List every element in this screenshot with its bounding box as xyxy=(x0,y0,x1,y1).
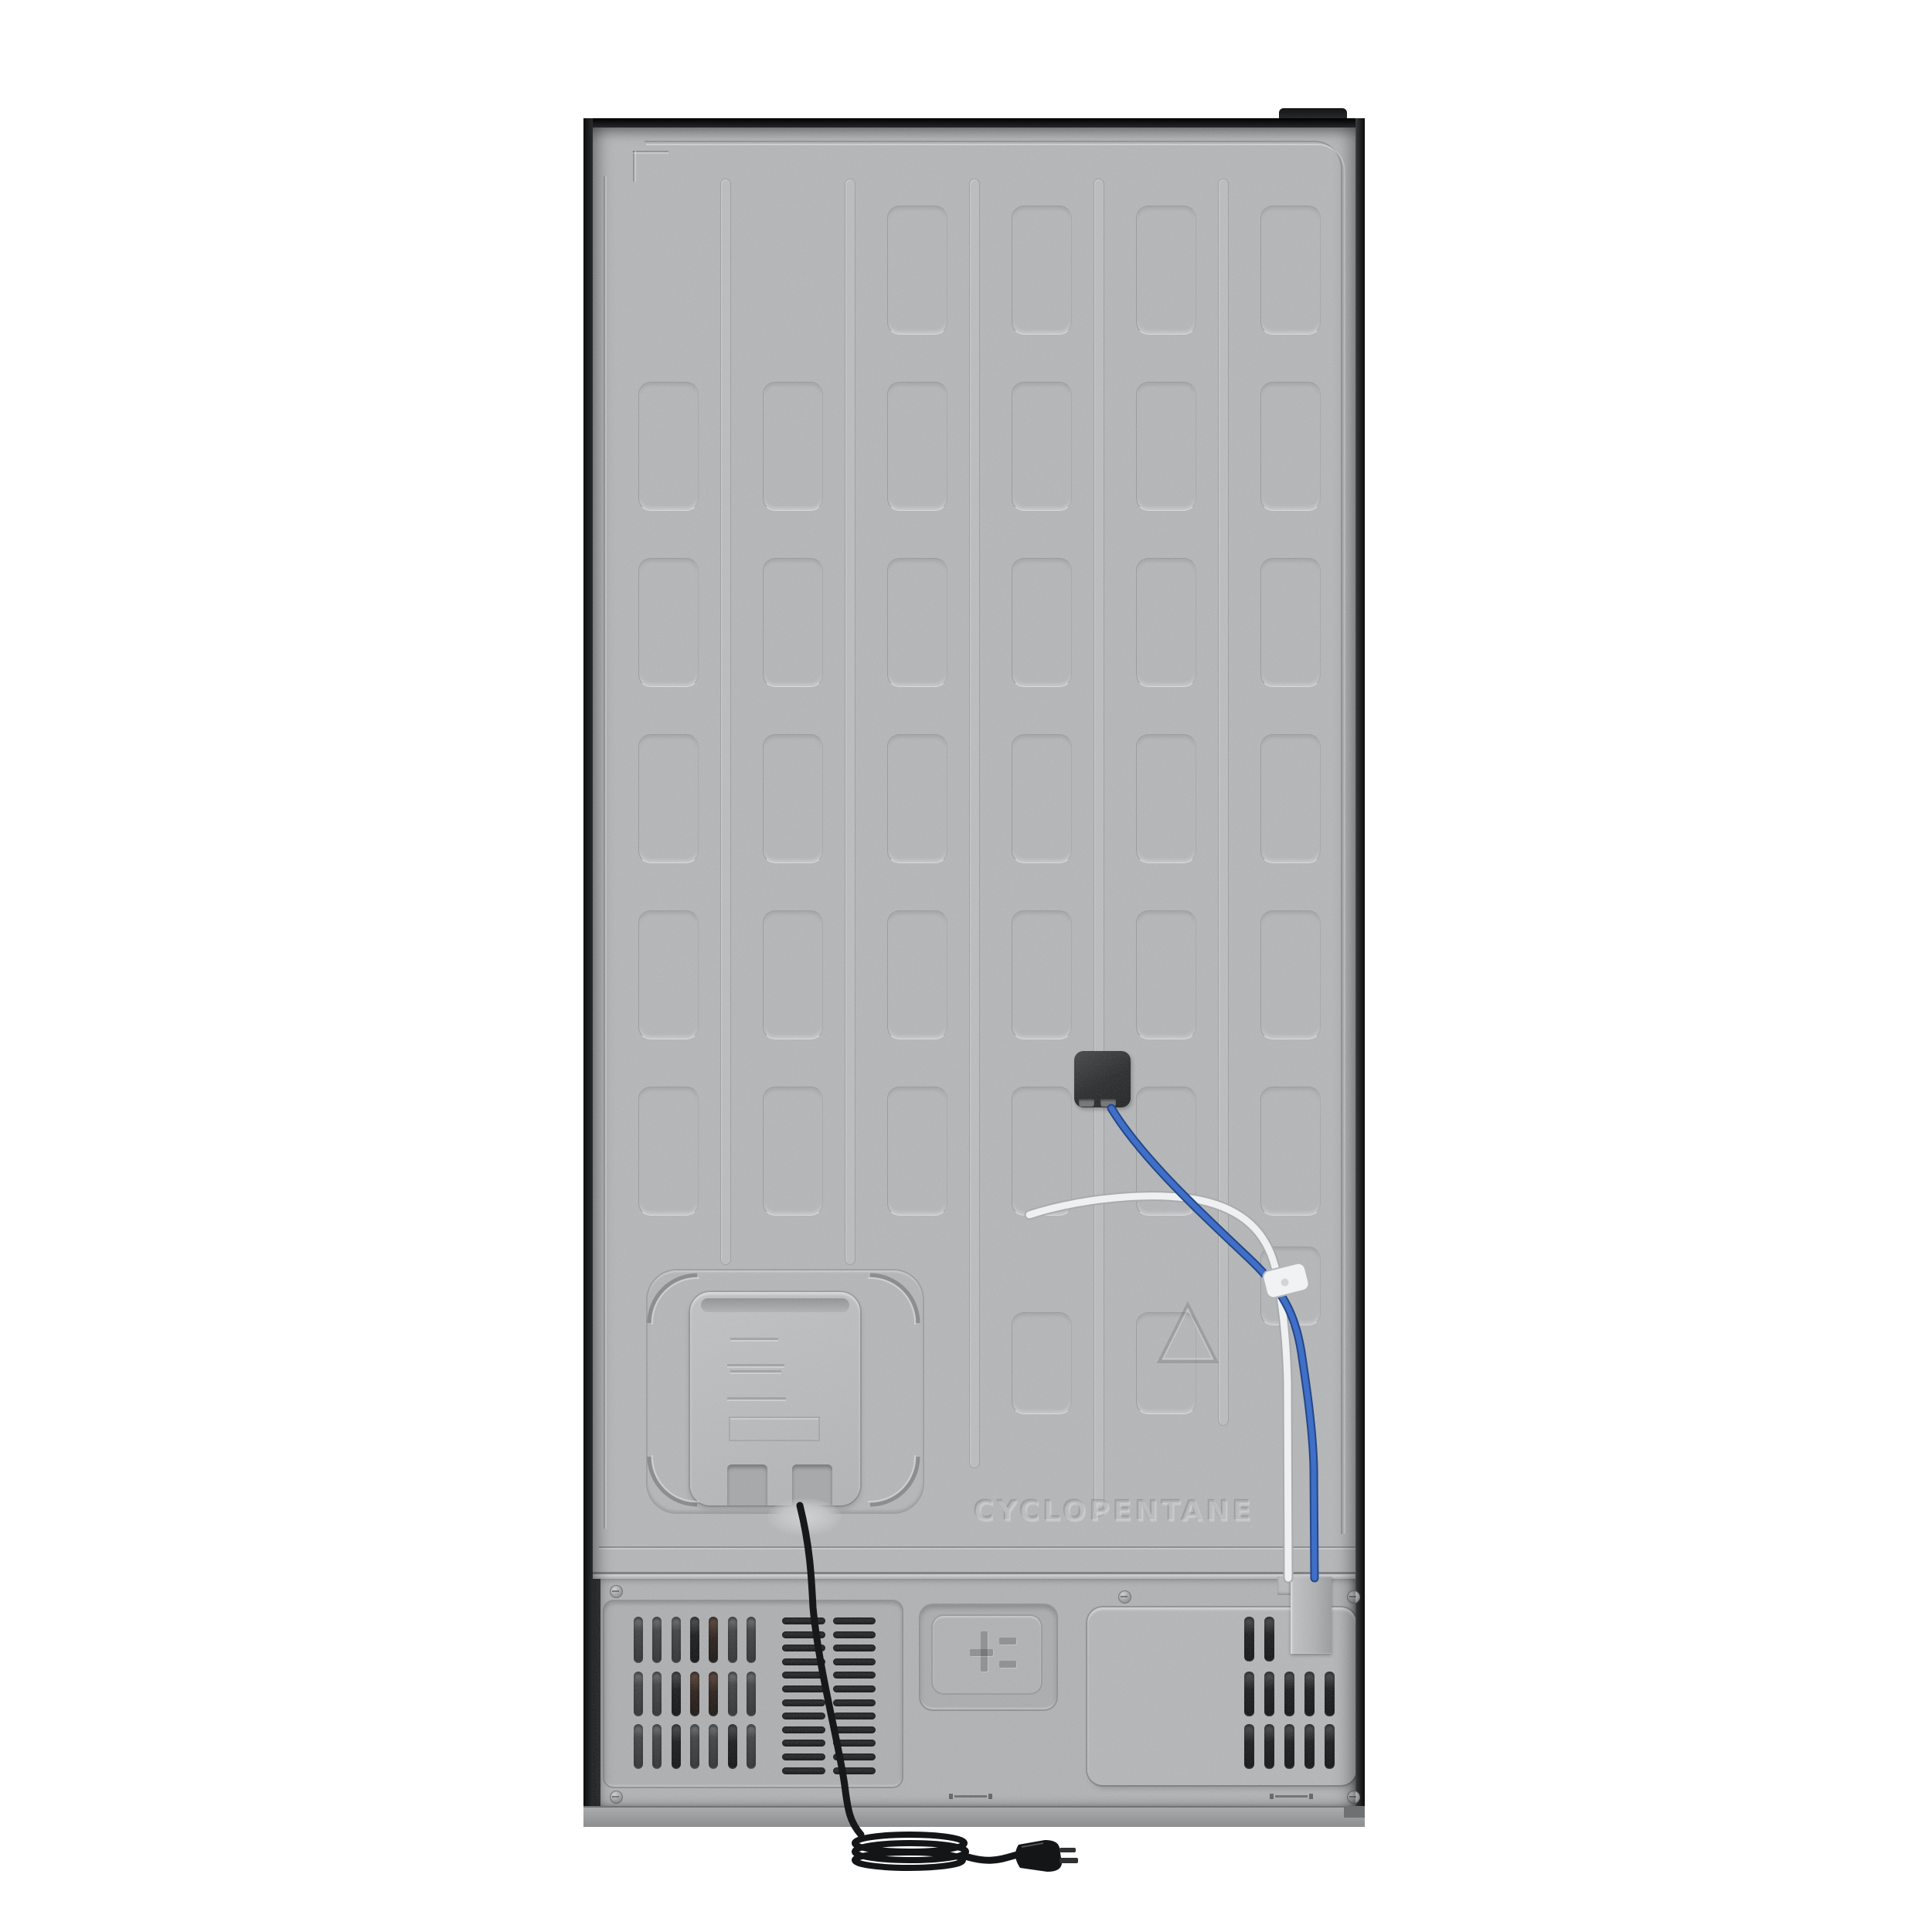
refrigerator-back: CYCLOPENTANE xyxy=(583,118,1365,1825)
vent-slot xyxy=(1284,1672,1294,1716)
tube-channel xyxy=(1094,179,1104,1517)
compartment-side-gap xyxy=(593,1579,600,1806)
plate-emboss-line xyxy=(730,1370,781,1372)
power-plug-icon-part xyxy=(999,1638,1016,1645)
scene-background: CYCLOPENTANE xyxy=(0,0,1932,1932)
vent-slot xyxy=(782,1658,825,1665)
vent-slot xyxy=(728,1724,737,1769)
vent-slot xyxy=(833,1767,876,1774)
vent-slot xyxy=(782,1631,825,1638)
dimple xyxy=(887,382,947,511)
screw xyxy=(610,1791,623,1804)
base-rail-step xyxy=(1344,1806,1365,1818)
vent-slot xyxy=(782,1740,825,1747)
dimple xyxy=(1136,734,1196,863)
vent-slot xyxy=(690,1617,699,1663)
plug-prong xyxy=(1060,1858,1078,1863)
vent-slot xyxy=(634,1617,643,1663)
vent-slot xyxy=(1244,1617,1254,1662)
vent-slot xyxy=(1284,1724,1294,1769)
vent-slot xyxy=(833,1617,876,1624)
vent-slot xyxy=(690,1672,699,1716)
vent-slot xyxy=(833,1631,876,1638)
dimple xyxy=(1260,382,1321,511)
vent-slot xyxy=(634,1724,643,1769)
dimple xyxy=(763,910,823,1039)
vent-slot xyxy=(833,1658,876,1665)
vent-slot xyxy=(833,1753,876,1760)
vent-slot xyxy=(1244,1672,1254,1716)
tube-bracket-tab xyxy=(1277,1577,1291,1595)
dimple xyxy=(1260,910,1321,1039)
vent-slot xyxy=(652,1617,662,1663)
vent-slot xyxy=(833,1726,876,1733)
plate-emboss-line xyxy=(727,1364,784,1366)
corner-emboss-mark xyxy=(633,151,634,182)
dimple xyxy=(1260,734,1321,863)
frame-top-edge xyxy=(583,118,1365,128)
dimple xyxy=(1012,734,1072,863)
vent-slot xyxy=(652,1672,662,1716)
dimple xyxy=(887,734,947,863)
dimple xyxy=(1012,382,1072,511)
vent-slot xyxy=(833,1685,876,1692)
vent-slot xyxy=(1244,1724,1254,1769)
dimple xyxy=(1012,910,1072,1039)
power-plug-icon-part xyxy=(999,1661,1016,1668)
vent-slot xyxy=(782,1699,825,1706)
embossed-left-ridge xyxy=(604,176,605,1529)
dimple xyxy=(1260,558,1321,687)
screw xyxy=(1347,1590,1360,1604)
vent-slot xyxy=(672,1672,681,1716)
tube-channel xyxy=(720,179,731,1265)
dimple xyxy=(1136,382,1196,511)
dimple xyxy=(1012,206,1072,335)
tube-channel xyxy=(969,179,980,1468)
dimple xyxy=(638,1087,699,1216)
vent-slot xyxy=(833,1672,876,1679)
power-plug-icon-part xyxy=(970,1649,993,1656)
vent-slot xyxy=(782,1617,825,1624)
vent-slot xyxy=(782,1767,825,1774)
dimple xyxy=(1136,1087,1196,1216)
dimple xyxy=(763,382,823,511)
vent-slot xyxy=(672,1617,681,1663)
tube-channel xyxy=(1218,179,1229,1426)
dimple xyxy=(763,558,823,687)
dimple xyxy=(887,910,947,1039)
plate-emboss-line xyxy=(730,1338,778,1340)
sensor-box-tab xyxy=(1100,1099,1116,1107)
panel-seam-line xyxy=(599,1546,1355,1548)
latch-mark xyxy=(954,1795,987,1798)
frame-right-edge xyxy=(1355,118,1365,1806)
vent-slot xyxy=(709,1617,718,1663)
screw xyxy=(1118,1590,1131,1604)
dimple xyxy=(763,1087,823,1216)
sensor-box-tab xyxy=(1079,1099,1094,1107)
vent-slot xyxy=(782,1713,825,1719)
dimple xyxy=(1136,910,1196,1039)
screw xyxy=(610,1585,623,1598)
vent-slot xyxy=(672,1724,681,1769)
vent-slot xyxy=(1304,1724,1315,1769)
dimple xyxy=(763,734,823,863)
dimple xyxy=(1260,1087,1321,1216)
drain-cover-emboss-rect xyxy=(729,1417,820,1441)
base-rail xyxy=(583,1806,1365,1827)
dimple xyxy=(638,558,699,687)
dimple xyxy=(1136,558,1196,687)
vent-slot xyxy=(833,1713,876,1719)
vent-slot xyxy=(1325,1672,1335,1716)
dimple xyxy=(638,910,699,1039)
power-plug xyxy=(1015,1840,1078,1872)
vent-slot xyxy=(709,1724,718,1769)
dimple xyxy=(1260,1247,1321,1325)
vent-slot xyxy=(747,1617,756,1663)
panel-fold-line xyxy=(593,1572,1355,1574)
vent-slot xyxy=(747,1724,756,1769)
vent-slot xyxy=(833,1645,876,1651)
vent-slot xyxy=(709,1672,718,1716)
latch-mark xyxy=(1275,1795,1308,1798)
drain-outlet-blob xyxy=(767,1498,842,1536)
plug-prong xyxy=(1060,1848,1076,1852)
vent-slot xyxy=(833,1740,876,1747)
drain-cover-notch xyxy=(727,1464,767,1505)
vent-slot xyxy=(1264,1724,1274,1769)
power-cord-coil xyxy=(855,1835,966,1868)
dimple xyxy=(1012,558,1072,687)
screw xyxy=(1347,1791,1360,1804)
dimple xyxy=(1012,1312,1072,1414)
vent-slot xyxy=(782,1726,825,1733)
corner-emboss-mark xyxy=(633,151,668,152)
vent-slot xyxy=(833,1699,876,1706)
vent-slot xyxy=(728,1672,737,1716)
vent-slot xyxy=(1304,1672,1315,1716)
vent-slot xyxy=(690,1724,699,1769)
vent-slot xyxy=(782,1685,825,1692)
vent-slot xyxy=(728,1617,737,1663)
dimple xyxy=(1136,1312,1196,1414)
vent-slot xyxy=(782,1672,825,1679)
plate-emboss-line xyxy=(727,1397,786,1400)
vent-slot xyxy=(782,1753,825,1760)
vent-slot xyxy=(1264,1617,1274,1662)
drain-cover-handle-recess xyxy=(701,1298,849,1312)
dimple xyxy=(887,206,947,335)
tube-bracket xyxy=(1291,1577,1332,1654)
frame-left-edge xyxy=(583,118,593,1806)
power-cord-tail xyxy=(963,1854,1020,1860)
dimple xyxy=(638,734,699,863)
dimple xyxy=(1136,206,1196,335)
dimple xyxy=(887,558,947,687)
tube-channel xyxy=(845,179,855,1265)
vent-slot xyxy=(782,1645,825,1651)
dimple xyxy=(638,382,699,511)
vent-slot xyxy=(747,1672,756,1716)
dimple xyxy=(1260,206,1321,335)
dimple xyxy=(1012,1087,1072,1216)
dimple xyxy=(887,1087,947,1216)
vent-slot xyxy=(634,1672,643,1716)
vent-slot xyxy=(1325,1724,1335,1769)
embossed-label: CYCLOPENTANE xyxy=(974,1495,1254,1527)
vent-slot xyxy=(652,1724,662,1769)
vent-slot xyxy=(1264,1672,1274,1716)
